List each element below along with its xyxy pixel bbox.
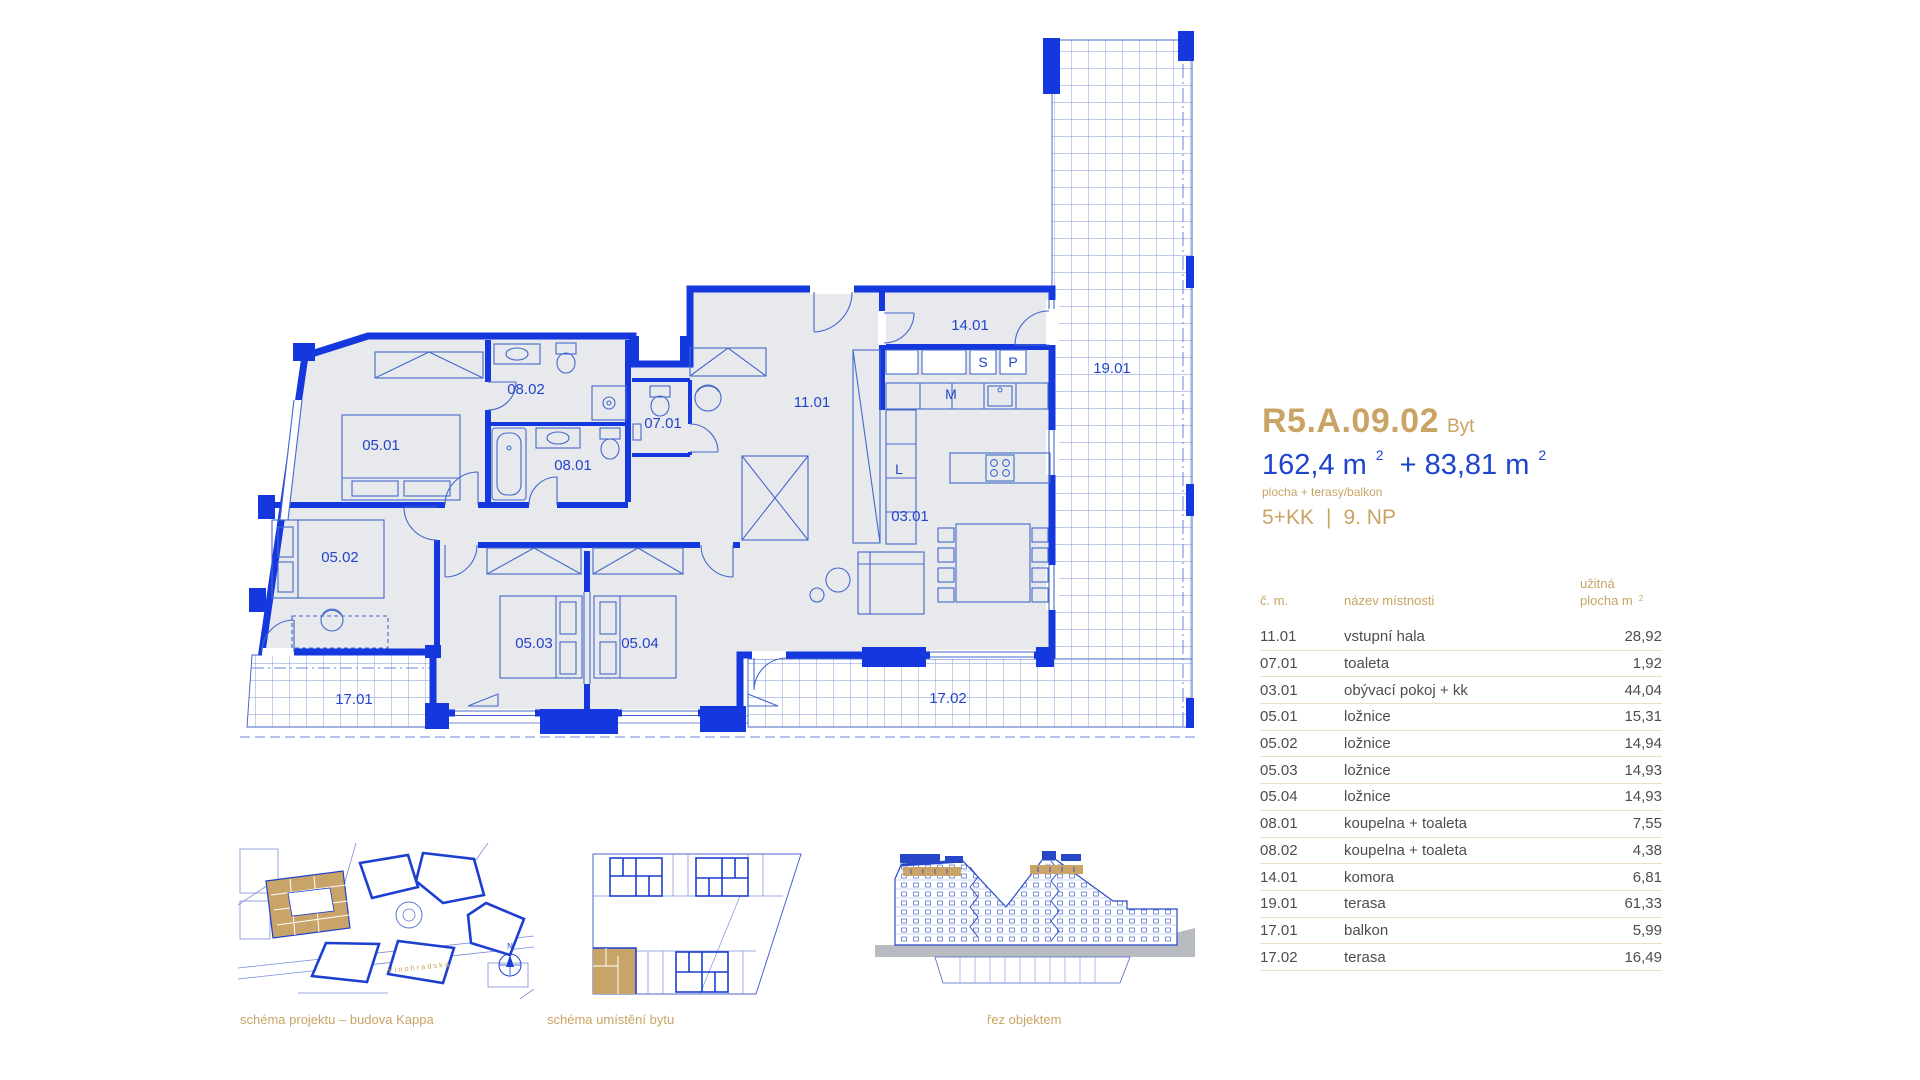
table-row: 07.01toaleta1,92 <box>1260 651 1662 678</box>
site-building-kappa <box>266 871 350 938</box>
unit-area: 162,4 m2+ 83,81 m2 <box>1262 447 1682 482</box>
table-row: 08.01koupelna + toaleta7,55 <box>1260 811 1662 838</box>
room-label-11.01: 11.01 <box>794 394 830 411</box>
unit-title: R5.A.09.02Byt <box>1262 402 1682 441</box>
room-label-17.02: 17.02 <box>929 690 967 707</box>
unit-code: R5.A.09.02 <box>1262 402 1439 440</box>
floor-value: 9. NP <box>1343 506 1396 529</box>
unit-disposition: 5+KK|9. NP <box>1262 506 1682 530</box>
room-label-05.03: 05.03 <box>515 635 553 652</box>
table-row: 05.02ložnice14,94 <box>1260 731 1662 758</box>
area-note: plocha + terasy/balkon <box>1262 485 1682 499</box>
area-main: 162,4 m <box>1262 449 1367 481</box>
area-sup-2: 2 <box>1538 447 1546 463</box>
page: 05.0108.0207.0108.0111.0114.0119.0103.01… <box>0 0 1920 1080</box>
caption-unit-position: schéma umístění bytu <box>547 1012 674 1027</box>
room-label-19.01: 19.01 <box>1093 360 1131 377</box>
header-number: č. m. <box>1260 593 1344 608</box>
table-row: 03.01obývací pokoj + kk44,04 <box>1260 677 1662 704</box>
floor-plan: 05.0108.0207.0108.0111.0114.0119.0103.01… <box>0 0 1250 770</box>
table-row: 05.03ložnice14,93 <box>1260 757 1662 784</box>
room-label-03.01: 03.01 <box>891 508 929 525</box>
terrace-17-02 <box>748 659 1192 727</box>
site-roundabout <box>396 902 422 928</box>
room-label-08.02: 08.02 <box>507 381 545 398</box>
table-header: č. m. název místnosti užitná plocha m2 <box>1260 576 1662 608</box>
room-label-05.01: 05.01 <box>362 437 400 454</box>
unit-type: Byt <box>1447 416 1474 437</box>
appliance-label-M: M <box>945 386 957 402</box>
header-name: název místnosti <box>1344 593 1580 608</box>
compass-n-label: N <box>507 942 513 951</box>
area-sup-1: 2 <box>1376 447 1384 463</box>
table-row: 05.04ložnice14,93 <box>1260 784 1662 811</box>
room-label-08.01: 08.01 <box>554 457 592 474</box>
appliance-label-P: P <box>1008 354 1017 370</box>
header-area: užitná plocha m2 <box>1580 576 1662 608</box>
disposition-value: 5+KK <box>1262 506 1314 529</box>
room-label-14.01: 14.01 <box>951 317 989 334</box>
table-row: 17.02terasa16,49 <box>1260 944 1662 971</box>
caption-section: řez objektem <box>987 1012 1061 1027</box>
room-label-17.01: 17.01 <box>335 691 373 708</box>
unit-position-diagram <box>588 846 804 998</box>
site-plan-diagram: Vinohradská N <box>238 843 534 999</box>
table-rows: 11.01vstupní hala28,9207.01toaleta1,9203… <box>1260 624 1662 971</box>
separator: | <box>1326 506 1331 529</box>
unit-info-panel: R5.A.09.02Byt 162,4 m2+ 83,81 m2 plocha … <box>1262 402 1682 530</box>
table-row: 08.02koupelna + toaleta4,38 <box>1260 838 1662 865</box>
room-label-05.02: 05.02 <box>321 549 359 566</box>
rooms-table: č. m. název místnosti užitná plocha m2 1… <box>1260 576 1662 971</box>
table-row: 19.01terasa61,33 <box>1260 891 1662 918</box>
caption-site-plan: schéma projektu – budova Kappa <box>240 1012 434 1027</box>
table-row: 17.01balkon5,99 <box>1260 918 1662 945</box>
appliance-label-L: L <box>895 461 903 477</box>
building-section-diagram <box>875 845 1195 997</box>
highlighted-unit <box>593 948 636 994</box>
room-label-07.01: 07.01 <box>644 415 682 432</box>
room-label-05.04: 05.04 <box>621 635 659 652</box>
table-row: 05.01ložnice15,31 <box>1260 704 1662 731</box>
terrace-19-01 <box>1052 40 1192 660</box>
table-row: 11.01vstupní hala28,92 <box>1260 624 1662 651</box>
appliance-label-S: S <box>978 354 987 370</box>
section-underground <box>935 957 1130 983</box>
area-extra: + 83,81 m <box>1400 449 1530 481</box>
table-row: 14.01komora6,81 <box>1260 864 1662 891</box>
